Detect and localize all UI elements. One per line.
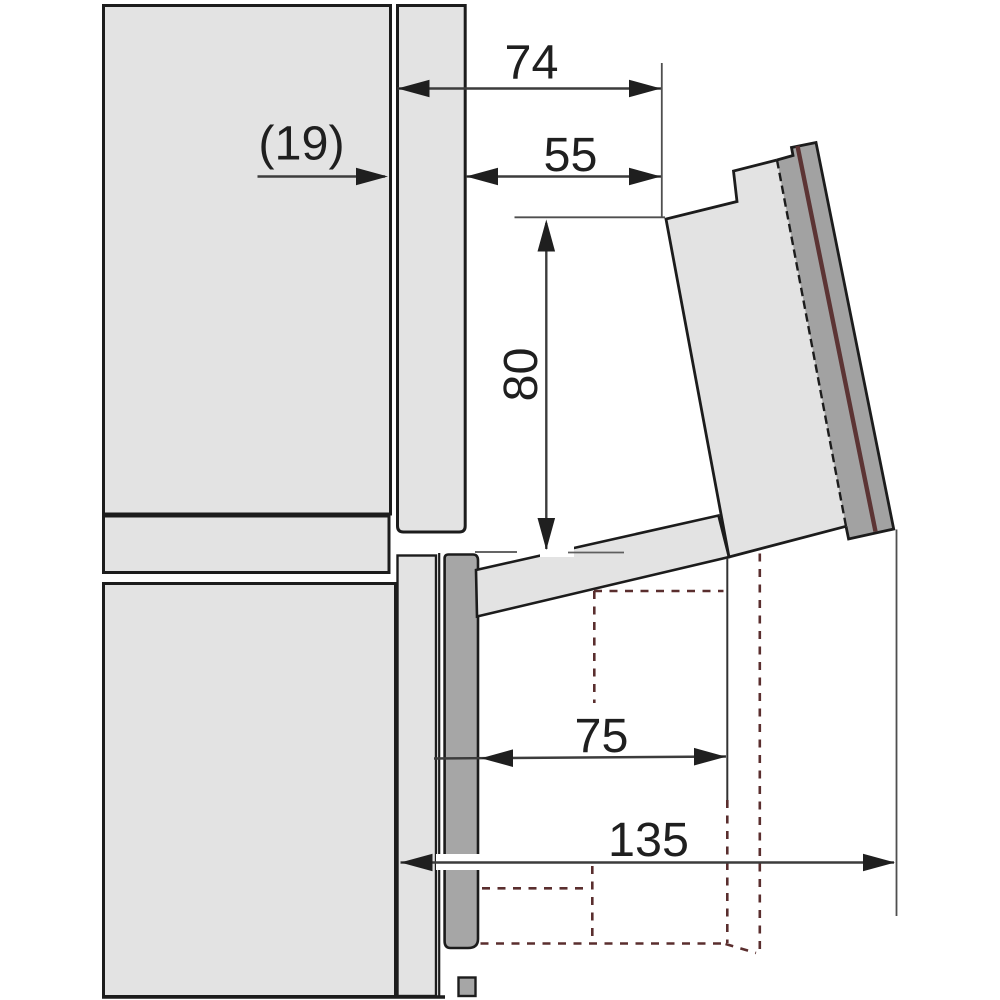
svg-text:74: 74 (505, 36, 559, 90)
svg-text:75: 75 (575, 709, 629, 763)
svg-text:135: 135 (608, 813, 689, 867)
svg-text:(19): (19) (258, 117, 344, 171)
svg-text:80: 80 (494, 348, 548, 402)
svg-text:55: 55 (544, 128, 598, 182)
